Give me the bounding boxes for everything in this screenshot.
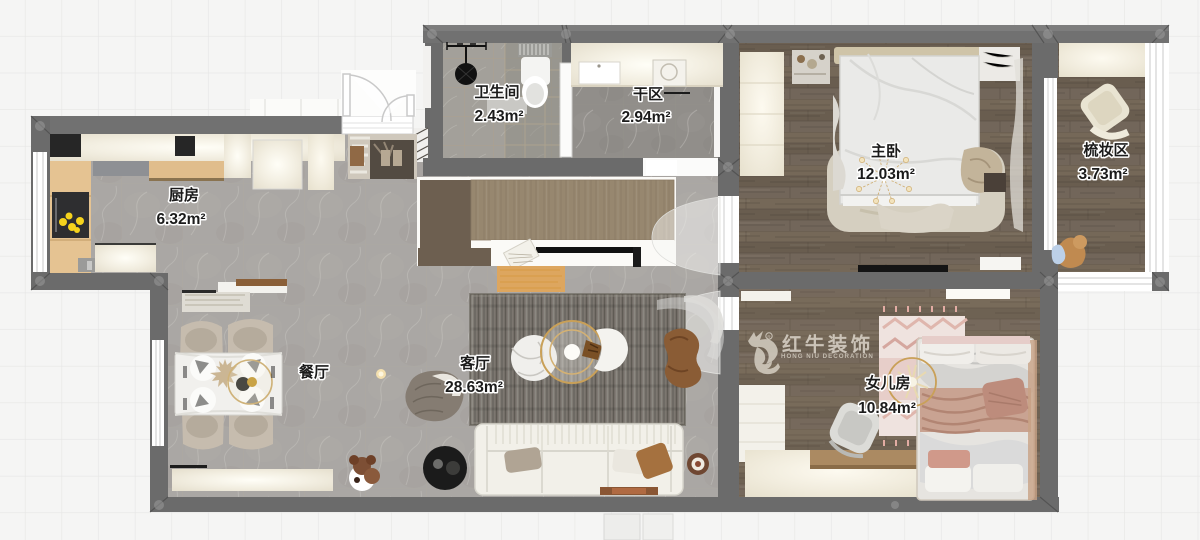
svg-text:2.94m²: 2.94m² [621, 109, 670, 126]
svg-text:梳妆区: 梳妆区 [1083, 141, 1128, 159]
svg-text:6.32m²: 6.32m² [156, 211, 205, 228]
svg-text:干区: 干区 [633, 86, 663, 103]
svg-text:卫生间: 卫生间 [474, 83, 519, 101]
svg-text:3.73m²: 3.73m² [1078, 166, 1127, 183]
svg-text:厨房: 厨房 [169, 186, 199, 204]
svg-text:客厅: 客厅 [459, 354, 490, 372]
svg-text:28.63m²: 28.63m² [445, 379, 503, 396]
svg-text:2.43m²: 2.43m² [474, 108, 523, 125]
svg-text:主卧: 主卧 [871, 142, 901, 160]
svg-text:HONG NIU DECORATION: HONG NIU DECORATION [781, 353, 874, 360]
svg-text:10.84m²: 10.84m² [858, 400, 916, 417]
svg-text:12.03m²: 12.03m² [857, 166, 915, 183]
svg-text:餐厅: 餐厅 [299, 363, 329, 381]
svg-text:女儿房: 女儿房 [865, 374, 910, 392]
